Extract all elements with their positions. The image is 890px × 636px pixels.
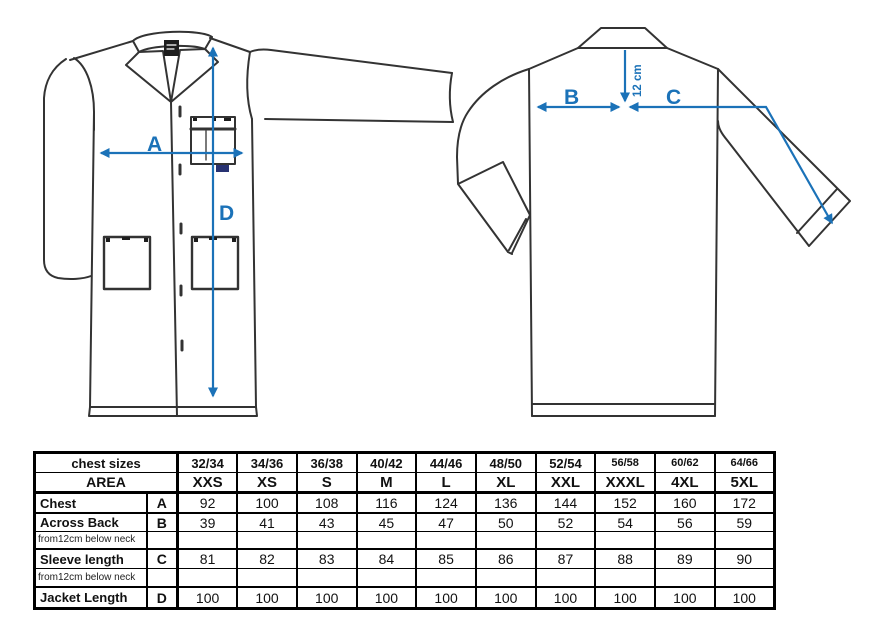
back-left-sleeve	[457, 69, 530, 254]
header-cell: 40/42	[357, 453, 417, 473]
empty-cell	[297, 532, 357, 550]
neck-offset-label: 12 cm	[632, 64, 644, 97]
value-cell: 116	[357, 493, 417, 514]
back-body-edges	[529, 69, 718, 416]
header-cell: 48/50	[476, 453, 536, 473]
table-row-chest: Chest A 92 100 108 116 124 136 144 152 1…	[35, 493, 775, 514]
header-cell: 60/62	[655, 453, 715, 473]
hip-pocket-stitches	[106, 237, 236, 242]
header-cell: 34/36	[237, 453, 297, 473]
empty-cell	[655, 532, 715, 550]
front-center-line	[171, 102, 177, 416]
back-view	[457, 28, 850, 416]
empty-cell	[476, 569, 536, 588]
measurement-diagram: A D B C 12 cm	[0, 0, 890, 440]
size-guide-page: A D B C 12 cm chest sizes 32/34 34/36 36…	[0, 0, 890, 636]
hip-pocket-right	[192, 237, 238, 289]
value-cell: 54	[595, 513, 655, 532]
size-table: chest sizes 32/34 34/36 36/38 40/42 44/4…	[33, 451, 776, 610]
front-armhole-left	[74, 58, 94, 130]
header-cell: L	[416, 473, 476, 493]
value-cell: 89	[655, 549, 715, 569]
header-cell: 36/38	[297, 453, 357, 473]
front-body-left-edge	[90, 112, 94, 407]
measure-label-d: D	[219, 202, 234, 225]
sleeve-length-arrow	[630, 107, 832, 223]
value-cell: 172	[715, 493, 775, 514]
row-letter: D	[147, 587, 178, 609]
header-cell: 56/58	[595, 453, 655, 473]
value-cell: 100	[655, 587, 715, 609]
value-cell: 82	[237, 549, 297, 569]
value-cell: 39	[178, 513, 238, 532]
empty-cell	[655, 569, 715, 588]
lapel-left	[126, 51, 171, 102]
row-note: from12cm below neck	[35, 569, 147, 588]
value-cell: 152	[595, 493, 655, 514]
front-view	[44, 32, 453, 416]
empty-cell	[715, 569, 775, 588]
table-row-across-back-note: from12cm below neck	[35, 532, 775, 550]
empty-cell	[147, 569, 178, 588]
value-cell: 41	[237, 513, 297, 532]
header-cell: chest sizes	[35, 453, 178, 473]
front-right-sleeve-bottom	[265, 119, 453, 122]
row-letter: A	[147, 493, 178, 514]
row-label: Sleeve length	[35, 549, 147, 569]
row-letter: B	[147, 513, 178, 532]
header-cell: 64/66	[715, 453, 775, 473]
measure-label-b: B	[564, 86, 579, 109]
empty-cell	[147, 532, 178, 550]
empty-cell	[357, 532, 417, 550]
value-cell: 144	[536, 493, 596, 514]
empty-cell	[536, 569, 596, 588]
value-cell: 100	[476, 587, 536, 609]
back-shoulder-seams	[529, 48, 718, 69]
table-row-area: AREA XXS XS S M L XL XXL XXXL 4XL 5XL	[35, 473, 775, 493]
measurement-arrows	[101, 48, 832, 396]
value-cell: 124	[416, 493, 476, 514]
value-cell: 136	[476, 493, 536, 514]
value-cell: 83	[297, 549, 357, 569]
front-body-right-edge	[252, 119, 256, 407]
row-label: Jacket Length	[35, 587, 147, 609]
value-cell: 85	[416, 549, 476, 569]
header-cell: M	[357, 473, 417, 493]
value-cell: 81	[178, 549, 238, 569]
back-collar	[578, 28, 667, 48]
value-cell: 100	[416, 587, 476, 609]
header-cell: 4XL	[655, 473, 715, 493]
value-cell: 47	[416, 513, 476, 532]
row-letter: C	[147, 549, 178, 569]
value-cell: 88	[595, 549, 655, 569]
empty-cell	[715, 532, 775, 550]
collar-outer	[133, 32, 212, 41]
value-cell: 50	[476, 513, 536, 532]
empty-cell	[595, 569, 655, 588]
value-cell: 56	[655, 513, 715, 532]
hip-pocket-left	[104, 237, 150, 289]
empty-cell	[357, 569, 417, 588]
value-cell: 100	[178, 587, 238, 609]
header-cell: XXXL	[595, 473, 655, 493]
row-label: Across Back	[35, 513, 147, 532]
value-cell: 92	[178, 493, 238, 514]
value-cell: 100	[595, 587, 655, 609]
value-cell: 100	[237, 587, 297, 609]
empty-cell	[178, 532, 238, 550]
front-hem	[89, 407, 257, 416]
table-row-across-back: Across Back B 39 41 43 45 47 50 52 54 56…	[35, 513, 775, 532]
value-cell: 108	[297, 493, 357, 514]
empty-cell	[536, 532, 596, 550]
row-label: Chest	[35, 493, 147, 514]
table-row-sleeve-length: Sleeve length C 81 82 83 84 85 86 87 88 …	[35, 549, 775, 569]
front-armhole-right	[247, 52, 252, 119]
empty-cell	[297, 569, 357, 588]
table-row-jacket-length: Jacket Length D 100 100 100 100 100 100 …	[35, 587, 775, 609]
value-cell: 87	[536, 549, 596, 569]
header-cell: XXL	[536, 473, 596, 493]
empty-cell	[237, 569, 297, 588]
header-cell: S	[297, 473, 357, 493]
value-cell: 100	[536, 587, 596, 609]
header-cell: 5XL	[715, 473, 775, 493]
front-right-sleeve-cuff	[450, 73, 453, 122]
header-cell: 52/54	[536, 453, 596, 473]
front-right-sleeve-top	[250, 49, 452, 73]
header-cell: XS	[237, 473, 297, 493]
header-cell: XL	[476, 473, 536, 493]
empty-cell	[237, 532, 297, 550]
value-cell: 52	[536, 513, 596, 532]
value-cell: 100	[357, 587, 417, 609]
value-cell: 100	[297, 587, 357, 609]
value-cell: 59	[715, 513, 775, 532]
back-hem	[532, 404, 715, 416]
header-cell: 32/34	[178, 453, 238, 473]
value-cell: 45	[357, 513, 417, 532]
empty-cell	[476, 532, 536, 550]
value-cell: 100	[715, 587, 775, 609]
value-cell: 84	[357, 549, 417, 569]
value-cell: 86	[476, 549, 536, 569]
header-cell: AREA	[35, 473, 178, 493]
empty-cell	[178, 569, 238, 588]
row-note: from12cm below neck	[35, 532, 147, 550]
empty-cell	[595, 532, 655, 550]
empty-cell	[416, 532, 476, 550]
neck-label	[164, 40, 179, 56]
pocket-brand-tag	[216, 165, 229, 172]
header-cell: 44/46	[416, 453, 476, 473]
value-cell: 43	[297, 513, 357, 532]
value-cell: 100	[237, 493, 297, 514]
empty-cell	[416, 569, 476, 588]
table-row-chest-sizes: chest sizes 32/34 34/36 36/38 40/42 44/4…	[35, 453, 775, 473]
header-cell: XXS	[178, 473, 238, 493]
lapel-right	[171, 49, 218, 102]
measure-label-c: C	[666, 86, 681, 109]
front-buttons	[180, 107, 182, 350]
front-left-sleeve	[44, 59, 91, 279]
value-cell: 160	[655, 493, 715, 514]
value-cell: 90	[715, 549, 775, 569]
table-row-sleeve-length-note: from12cm below neck	[35, 569, 775, 588]
measure-label-a: A	[147, 133, 162, 156]
